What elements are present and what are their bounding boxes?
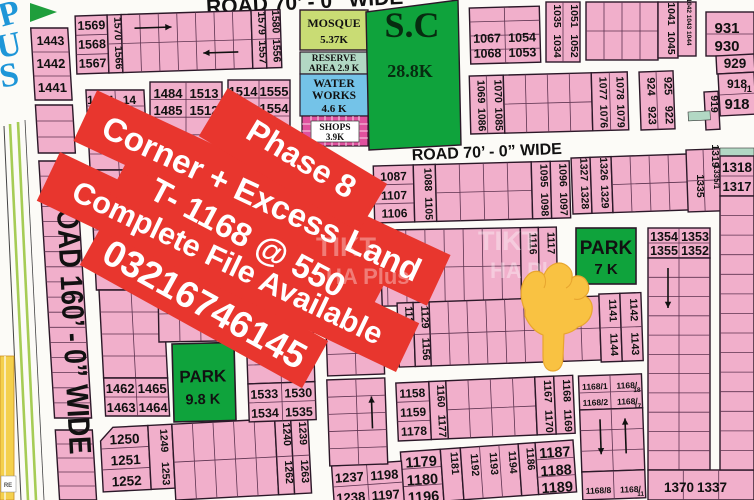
svg-text:1238: 1238 [336, 489, 366, 500]
svg-text:1045: 1045 [665, 31, 677, 55]
svg-text:1197: 1197 [371, 486, 400, 500]
svg-text:1068: 1068 [473, 46, 501, 61]
svg-text:1442: 1442 [36, 56, 66, 71]
svg-text:18: 18 [633, 387, 641, 394]
svg-text:1168: 1168 [560, 379, 573, 402]
svg-text:1168/2: 1168/2 [582, 397, 608, 408]
svg-text:1370: 1370 [664, 480, 694, 495]
svg-text:1251: 1251 [110, 452, 141, 469]
svg-text:1117: 1117 [544, 232, 556, 255]
svg-text:1078: 1078 [613, 76, 626, 100]
svg-text:918: 918 [724, 96, 749, 113]
svg-text:1034: 1034 [551, 34, 563, 58]
svg-text:1070: 1070 [491, 79, 504, 103]
svg-text:1096: 1096 [556, 163, 569, 187]
svg-text:1569: 1569 [77, 18, 105, 33]
svg-text:1160: 1160 [434, 384, 447, 407]
svg-text:1076: 1076 [597, 105, 610, 129]
svg-text:1097: 1097 [557, 192, 570, 216]
svg-text:1194: 1194 [506, 450, 520, 474]
svg-text:1189: 1189 [541, 479, 574, 497]
svg-text:1352: 1352 [681, 244, 709, 258]
svg-text:1107: 1107 [381, 188, 408, 203]
svg-text:1353: 1353 [681, 230, 709, 244]
svg-text:1041: 1041 [665, 2, 677, 26]
svg-text:1088: 1088 [421, 168, 434, 192]
svg-text:11: 11 [637, 491, 644, 498]
svg-text:925: 925 [661, 77, 674, 96]
svg-text:1463: 1463 [106, 400, 136, 415]
svg-text:1355: 1355 [650, 244, 678, 258]
svg-text:1318: 1318 [722, 160, 753, 175]
svg-text:1159: 1159 [400, 405, 427, 420]
svg-text:TIKT: TIKT [478, 226, 538, 256]
svg-text:1180: 1180 [406, 472, 439, 490]
svg-text:1198: 1198 [370, 466, 399, 483]
svg-text:923: 923 [645, 106, 658, 125]
svg-text:TIKT: TIKT [316, 232, 376, 262]
svg-text:1337: 1337 [697, 480, 727, 495]
svg-text:1249: 1249 [157, 429, 170, 453]
svg-text:1177: 1177 [435, 414, 448, 437]
svg-text:1556: 1556 [270, 39, 283, 63]
svg-text:1250: 1250 [109, 431, 140, 448]
svg-text:PARK: PARK [580, 238, 633, 259]
svg-text:929: 929 [724, 56, 747, 71]
svg-text:1568: 1568 [78, 37, 106, 52]
svg-text:1142: 1142 [627, 298, 640, 321]
svg-text:922: 922 [662, 106, 675, 125]
svg-text:1192: 1192 [468, 453, 482, 477]
svg-text:924: 924 [644, 77, 657, 97]
svg-text:1178: 1178 [401, 424, 428, 439]
svg-text:1035: 1035 [551, 4, 563, 28]
svg-text:9.8 K: 9.8 K [185, 392, 221, 409]
svg-text:1054: 1054 [508, 30, 536, 45]
svg-text:1535: 1535 [285, 405, 313, 420]
svg-text:WATER: WATER [313, 78, 355, 90]
svg-text:1252: 1252 [111, 473, 142, 490]
svg-text:1329: 1329 [598, 185, 611, 209]
svg-text:1465: 1465 [137, 381, 167, 396]
svg-text:1098: 1098 [538, 193, 551, 217]
svg-text:1069: 1069 [474, 80, 487, 104]
svg-text:1513: 1513 [190, 86, 219, 101]
svg-text:1530: 1530 [284, 386, 312, 401]
svg-text:PARK: PARK [179, 366, 227, 386]
svg-text:5.37K: 5.37K [320, 34, 348, 46]
svg-text:1327: 1327 [577, 158, 590, 182]
svg-text:1167: 1167 [541, 380, 554, 403]
svg-text:1335: 1335 [694, 174, 706, 198]
svg-text:1181: 1181 [448, 452, 462, 476]
svg-text:S.C: S.C [384, 5, 439, 45]
svg-text:1317: 1317 [723, 179, 752, 194]
svg-text:1484: 1484 [154, 86, 184, 101]
svg-text:4.6 K: 4.6 K [321, 103, 347, 115]
svg-text:1085: 1085 [492, 107, 505, 131]
svg-text:HA Plus: HA Plus [326, 264, 410, 289]
svg-text:1237: 1237 [334, 469, 364, 486]
svg-text:1086: 1086 [475, 108, 488, 132]
svg-text:1193: 1193 [487, 452, 501, 476]
svg-text:1188: 1188 [540, 462, 573, 480]
svg-text:MOSQUE: MOSQUE [307, 16, 360, 30]
svg-text:930: 930 [714, 38, 739, 55]
svg-text:1051: 1051 [568, 4, 580, 28]
svg-text:1095: 1095 [537, 164, 550, 188]
svg-text:1106: 1106 [381, 206, 408, 221]
svg-text:1169: 1169 [561, 409, 574, 432]
svg-text:1533: 1533 [250, 387, 278, 402]
svg-text:AREA 2.9 K: AREA 2.9 K [309, 64, 360, 74]
svg-text:1253: 1253 [159, 462, 172, 486]
svg-text:919: 919 [708, 95, 720, 113]
svg-text:1067: 1067 [473, 31, 501, 46]
svg-text:WORKS: WORKS [312, 90, 356, 102]
svg-text:1485: 1485 [154, 103, 183, 118]
svg-text:1567: 1567 [78, 56, 106, 71]
svg-text:1077: 1077 [596, 77, 609, 101]
svg-text:1144: 1144 [607, 333, 620, 356]
svg-text:1105: 1105 [422, 197, 435, 220]
svg-text:1141: 1141 [606, 299, 619, 322]
svg-text:1087: 1087 [380, 169, 407, 184]
svg-text:1328: 1328 [578, 186, 591, 210]
svg-text:931: 931 [714, 20, 739, 37]
svg-text:1263: 1263 [298, 459, 311, 483]
svg-text:1168/1: 1168/1 [582, 381, 608, 392]
svg-text:3.9K: 3.9K [326, 132, 344, 142]
svg-text:1326: 1326 [597, 157, 610, 181]
svg-text:1443: 1443 [36, 34, 65, 48]
svg-text:/1: /1 [744, 84, 752, 94]
svg-text:RESERVE: RESERVE [312, 54, 357, 64]
svg-text:1168/8: 1168/8 [586, 485, 612, 496]
svg-text:1555: 1555 [260, 84, 289, 99]
svg-text:28.8K: 28.8K [387, 61, 433, 81]
svg-text:1196: 1196 [407, 488, 440, 500]
svg-text:1441: 1441 [37, 80, 67, 95]
svg-text:1170: 1170 [542, 410, 555, 433]
svg-text:7 K: 7 K [594, 261, 618, 278]
svg-text:1354: 1354 [650, 230, 678, 244]
svg-text:1464: 1464 [138, 400, 168, 415]
svg-text:1179: 1179 [405, 454, 438, 472]
svg-text:1143: 1143 [628, 332, 641, 355]
svg-text:1534: 1534 [251, 406, 279, 421]
svg-text:1239: 1239 [296, 421, 309, 445]
svg-text:1053: 1053 [508, 45, 536, 60]
svg-text:RE: RE [4, 483, 12, 489]
svg-text:1158: 1158 [399, 386, 426, 401]
svg-text:1580: 1580 [269, 10, 282, 34]
svg-text:1079: 1079 [614, 104, 627, 128]
svg-text:1462: 1462 [105, 381, 135, 396]
svg-text:1042 1043 1044: 1042 1043 1044 [685, 0, 692, 46]
svg-text:1187: 1187 [539, 444, 572, 462]
svg-text:1052: 1052 [568, 34, 580, 58]
